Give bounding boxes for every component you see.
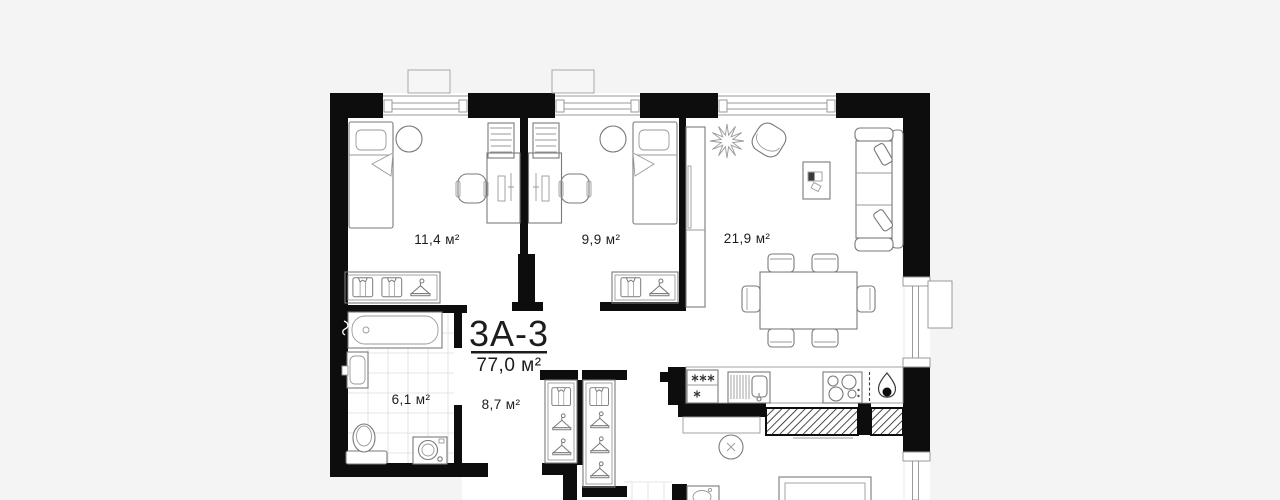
dining-chair-icon [742, 286, 760, 312]
dining-chair-icon [857, 286, 875, 312]
bathtub-icon [343, 312, 442, 348]
washing-machine-icon [413, 437, 447, 464]
vent-box-1 [408, 70, 450, 93]
plan-total-area: 77,0 м² [476, 355, 541, 376]
room-area-label: 8,7 м² [482, 397, 521, 412]
title-underline [471, 351, 547, 354]
dining-chair-icon [812, 254, 838, 272]
plan-title: 3А-3 [469, 313, 549, 354]
dining-chair-icon [768, 329, 794, 347]
window-bedroom-2 [555, 93, 640, 118]
room-area-label: 9,9 м² [582, 232, 621, 247]
room-area-label: 21,9 м² [724, 231, 771, 246]
floorplan-page: 11,4 м² 9,9 м² [0, 0, 1280, 500]
floorplan-canvas: 11,4 м² 9,9 м² [0, 0, 1280, 500]
room-area-label: 6,1 м² [392, 392, 431, 407]
room-area-label: 11,4 м² [414, 232, 460, 247]
title-block: 3А-3 77,0 м² [469, 313, 549, 376]
dining-chair-icon [768, 254, 794, 272]
vent-box-2 [552, 70, 594, 93]
open-window-sash [928, 281, 952, 328]
vent-shaft-hatched [766, 408, 903, 435]
bed-icon [349, 122, 393, 228]
kitchen-counter [686, 367, 903, 403]
sofa-icon [855, 128, 903, 251]
bed-icon [633, 122, 677, 224]
dining-chair-icon [812, 329, 838, 347]
window-living-room [718, 93, 836, 118]
counter-back-icon [683, 417, 760, 433]
window-bedroom-1 [383, 93, 468, 118]
